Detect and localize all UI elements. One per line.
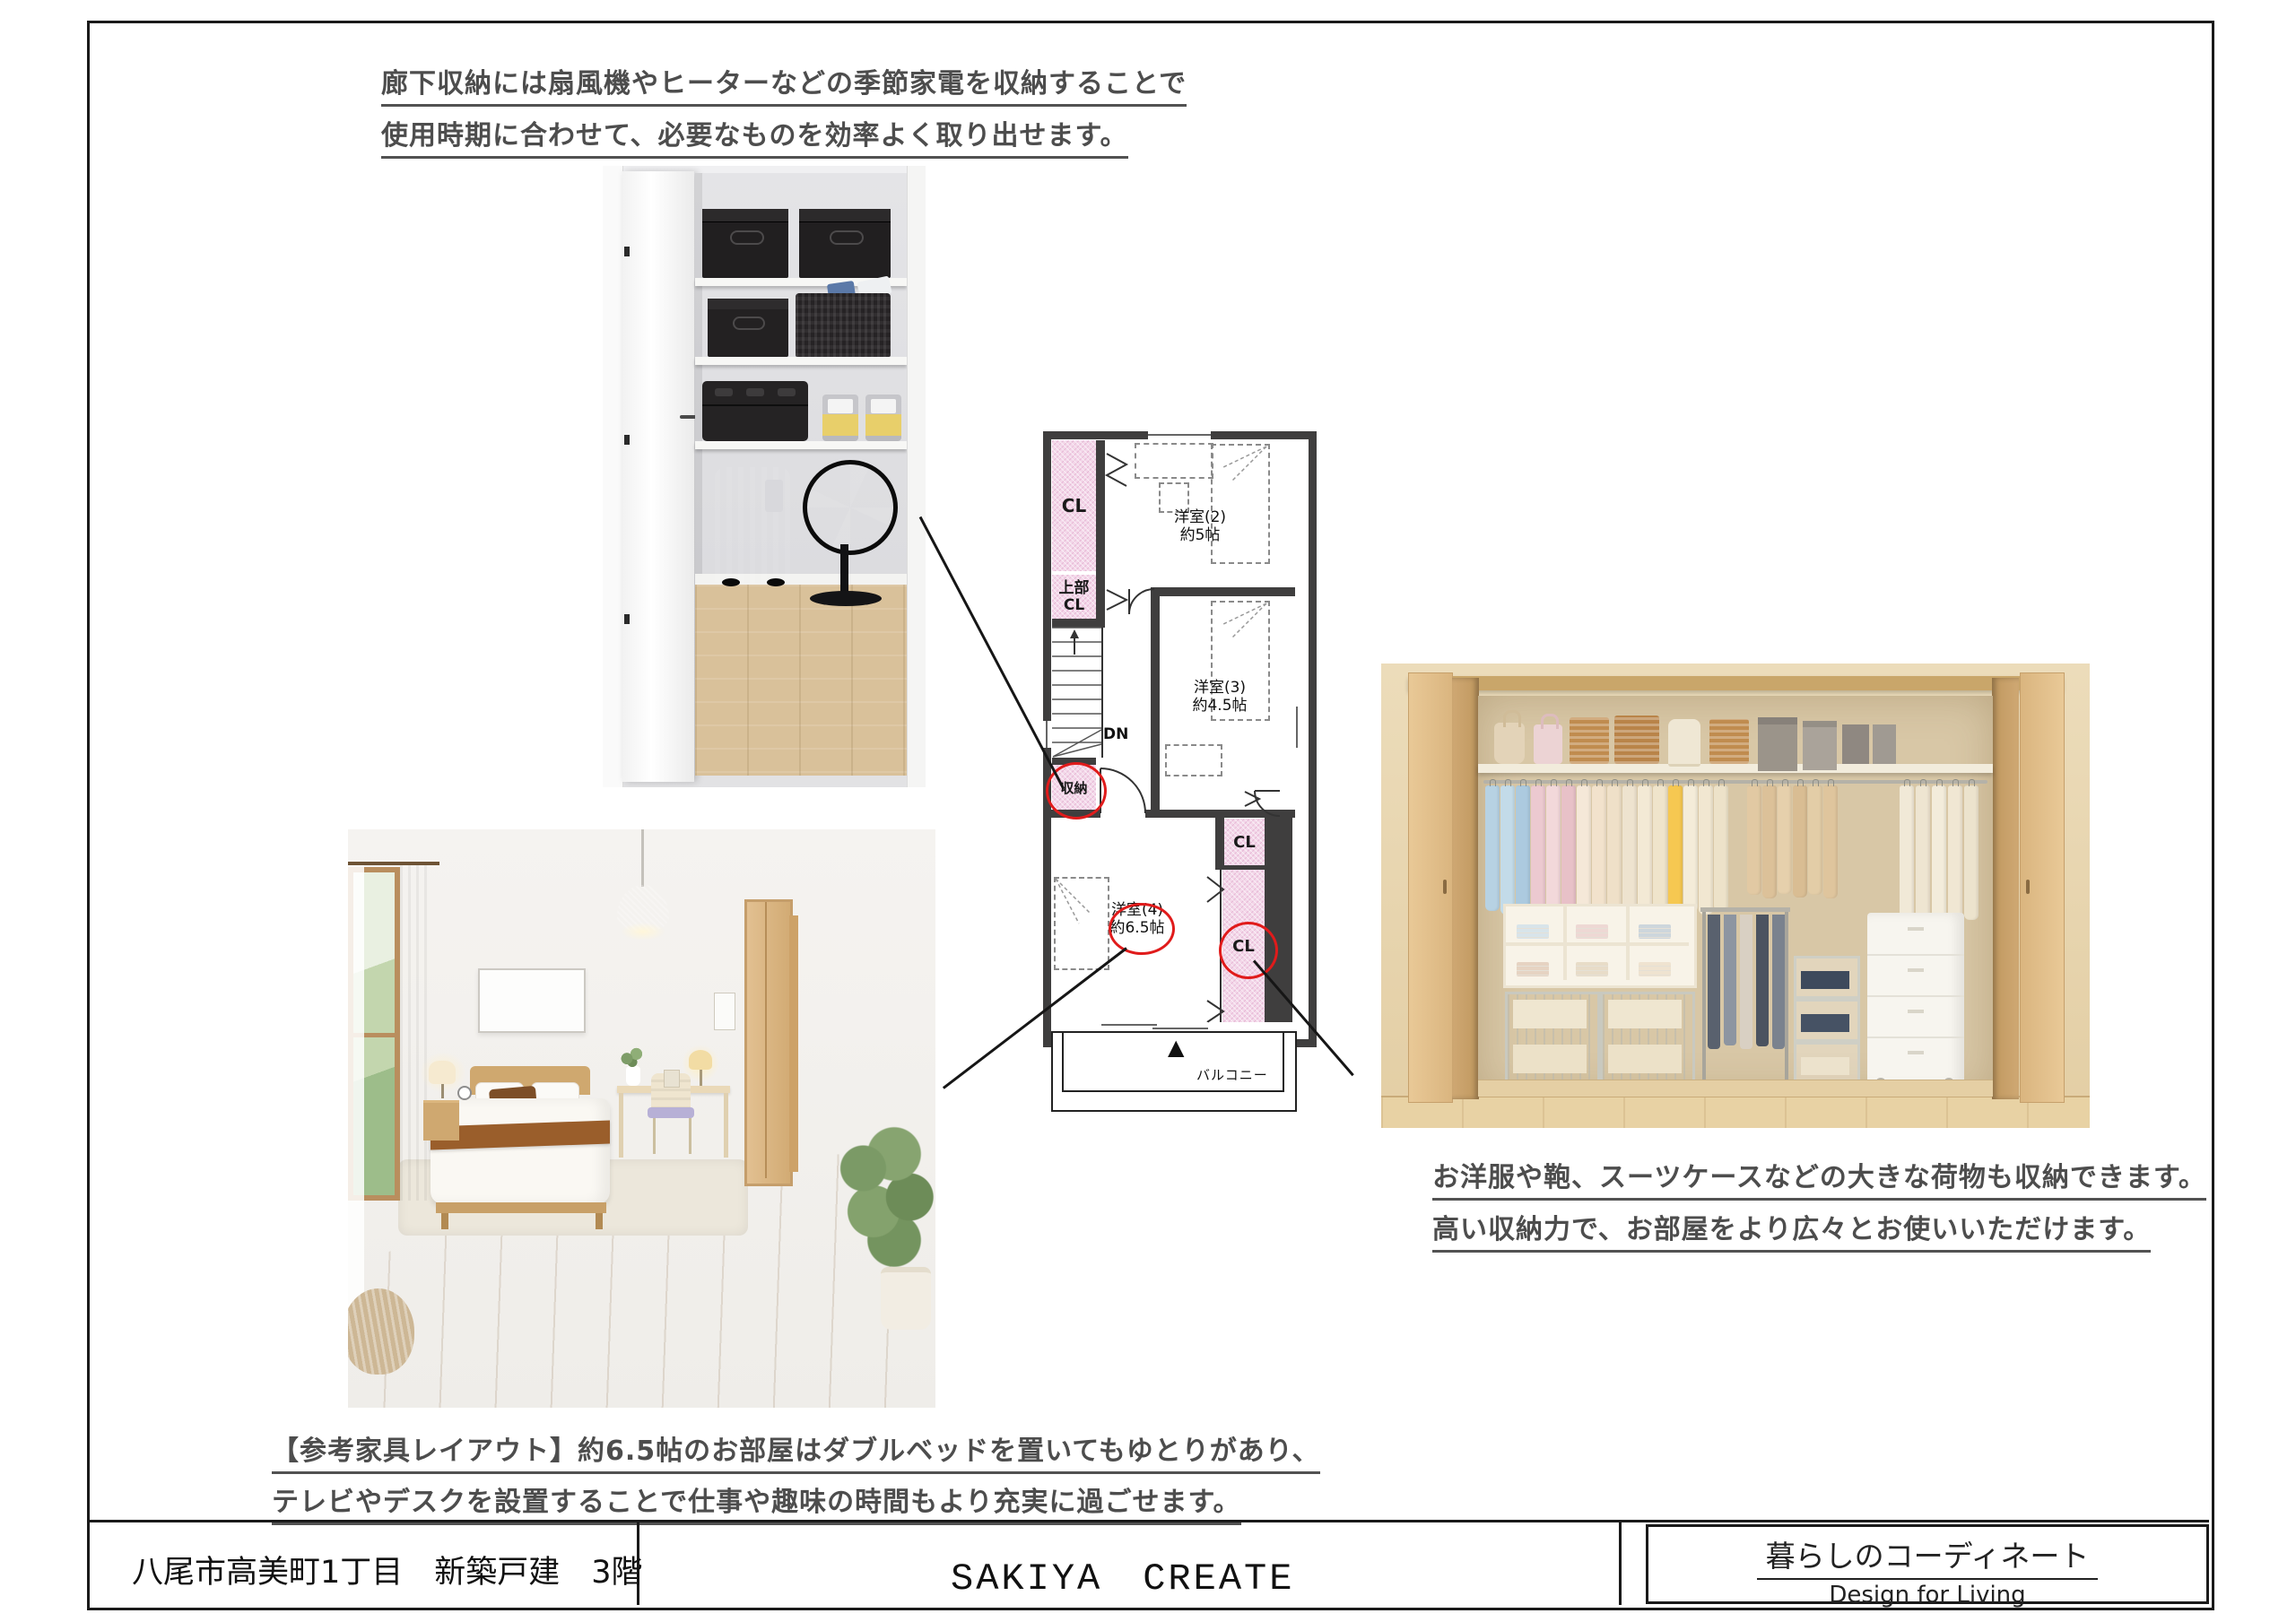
small-frame — [714, 993, 735, 1030]
desk-leg — [619, 1093, 623, 1158]
case-slot — [715, 388, 733, 396]
hanging-shirt — [1592, 785, 1606, 914]
hanging-shirt — [1747, 785, 1761, 895]
folded-clothes — [1801, 1057, 1849, 1075]
closet-interior — [1478, 696, 1993, 1096]
door-jamb — [907, 166, 926, 787]
footer-divider-top — [87, 1520, 2209, 1522]
heater-wheel — [722, 578, 740, 586]
drawer-line — [1867, 1037, 1964, 1038]
cubby-divider — [1563, 906, 1567, 980]
footer-company-name: SAKIYA CREATE — [951, 1546, 1294, 1600]
caption-hallway-line2: 使用時期に合わせて、必要なものを効率よく取り出せます。 — [381, 113, 1128, 152]
hanging-shirt — [1622, 785, 1637, 915]
plant-pot — [881, 1267, 931, 1330]
wood-floor — [1381, 1096, 2090, 1128]
wire-tier — [1794, 1042, 1860, 1085]
balcony-label: バルコニー — [1196, 1065, 1268, 1084]
balcony: ▲ バルコニー — [1051, 1031, 1297, 1112]
hallway-closet-photo — [603, 166, 926, 787]
hanging-shirt — [1653, 785, 1667, 910]
footer-brand-jp: 暮らしのコーディネート — [1757, 1532, 2099, 1580]
sheer-curtain — [348, 865, 364, 1331]
folded-clothes — [1801, 1014, 1849, 1032]
tote-bag — [1534, 724, 1562, 764]
hanging-shirt — [1577, 785, 1591, 910]
wire-tier — [1794, 999, 1860, 1042]
bed-leg — [596, 1213, 603, 1229]
hanging-shirt — [1683, 785, 1698, 912]
closet-door — [622, 171, 694, 782]
door-handle — [1443, 880, 1447, 894]
gray-box — [1758, 717, 1797, 771]
cubby-shelf — [1503, 904, 1697, 988]
rack-leg — [1785, 912, 1788, 1082]
nightstand — [423, 1100, 459, 1141]
desk-photo-frame — [664, 1070, 680, 1088]
wire-basket — [1505, 992, 1600, 1087]
wire-basket — [1600, 992, 1695, 1087]
footer-divider-2 — [1619, 1520, 1622, 1605]
caption-bedroom-line1: 【参考家具レイアウト】約6.5帖のお部屋はダブルベッドを置いてもゆとりがあり、 — [272, 1428, 1320, 1468]
dn-label: DN — [1103, 726, 1128, 744]
bedroom-photo — [348, 829, 935, 1408]
folded-clothes — [1639, 962, 1671, 976]
hanging-shirt — [1762, 785, 1777, 898]
storage-box — [799, 209, 891, 278]
box-lid — [799, 209, 891, 222]
oil-heater — [715, 467, 790, 584]
desk-lamp — [689, 1050, 712, 1070]
gray-box — [1873, 724, 1896, 764]
hanging-rod — [1483, 780, 1987, 784]
hanging-shirt — [1823, 785, 1838, 898]
closet-door-left — [1408, 672, 1453, 1103]
hanging-shirt — [1561, 785, 1576, 915]
gray-box — [1842, 724, 1869, 764]
hanging-shirt — [1516, 785, 1530, 909]
pants-rack — [1700, 907, 1790, 1087]
drawer-line — [1867, 995, 1964, 997]
hanging-shirt — [1638, 785, 1652, 912]
rack-leg — [1702, 912, 1706, 1082]
caption-hallway-line1: 廊下収納には扇風機やヒーターなどの季節家電を収納することで — [381, 61, 1187, 100]
case-line — [702, 404, 808, 406]
drawer-handle — [1908, 1010, 1924, 1013]
folded-clothes — [1517, 962, 1549, 976]
storage-box — [702, 209, 788, 278]
lintel — [1408, 676, 2063, 690]
bag-handle — [1503, 710, 1521, 727]
folded-linen — [1513, 1000, 1587, 1028]
bed-frame — [436, 1202, 606, 1213]
box-handle — [730, 230, 764, 245]
shelf-board — [695, 441, 907, 449]
door-handle — [2026, 880, 2030, 894]
hanging-pants — [1772, 915, 1785, 1049]
hanging-pants — [1740, 915, 1752, 1049]
hanging-shirt — [1668, 785, 1683, 915]
box-handle — [830, 230, 864, 245]
hanging-coat — [1900, 785, 1914, 920]
potted-plant-foliage — [832, 1125, 935, 1269]
drawer-handle — [1908, 1051, 1924, 1054]
hanging-shirt — [1607, 785, 1622, 911]
closet-interior — [695, 173, 907, 776]
drawer-handle — [1908, 927, 1924, 931]
hanging-shirt — [1793, 785, 1807, 898]
electric-fan — [803, 460, 898, 555]
rattan-basket — [1614, 716, 1659, 764]
rattan-basket — [1709, 719, 1749, 764]
box-lid — [708, 299, 788, 309]
hanging-coat — [1916, 785, 1930, 924]
chair-leg — [689, 1118, 691, 1154]
folded-clothes — [1576, 962, 1608, 976]
hanging-shirt — [1699, 785, 1713, 915]
floor-pouf — [348, 1288, 414, 1375]
wire-basket-tower — [1794, 956, 1860, 1085]
desk-plant — [619, 1045, 646, 1068]
page: 廊下収納には扇風機やヒーターなどの季節家電を収納することで 使用時期に合わせて、… — [0, 0, 2296, 1622]
wood-floor — [695, 585, 907, 776]
fan-pole — [840, 544, 848, 596]
lamp-stem — [441, 1084, 444, 1098]
drawer-line — [1867, 954, 1964, 956]
box-handle — [733, 317, 765, 330]
hanging-pants — [1756, 915, 1769, 1046]
drawer-handle — [1908, 968, 1924, 972]
folded-linen — [1608, 1045, 1682, 1073]
chair-leg — [653, 1118, 656, 1154]
woven-basket — [796, 293, 891, 357]
door-edge — [789, 915, 798, 1172]
folded-clothes — [1801, 971, 1849, 989]
gray-box — [1803, 721, 1837, 770]
hanging-shirt — [1778, 785, 1792, 894]
door-hinge — [624, 435, 630, 445]
north-triangle: ▲ — [1168, 1035, 1184, 1060]
door-hinge — [624, 247, 630, 256]
folded-linen — [1513, 1045, 1587, 1073]
room-door — [744, 899, 793, 1186]
jar-label — [828, 399, 853, 413]
folded-clothes — [1639, 924, 1671, 939]
storage-box — [708, 299, 788, 357]
folded-clothes — [1517, 924, 1549, 939]
cubby-divider — [1626, 906, 1630, 980]
curtain — [400, 865, 430, 1201]
footer-brand-box: 暮らしのコーディネート Design for Living — [1646, 1524, 2209, 1604]
footer-address: 八尾市高美町1丁目 新築戸建 3階 — [132, 1547, 643, 1592]
closet-door-right-fold — [1992, 678, 2019, 1099]
hanging-coat — [1948, 785, 1962, 923]
shelf-board — [1478, 764, 1993, 773]
desk-leg — [724, 1093, 728, 1158]
heater-wheel — [767, 578, 785, 586]
caption-wardrobe-line2: 高い収納力で、お部屋をより広々とお使いいただけます。 — [1432, 1207, 2151, 1246]
handbag — [1494, 723, 1525, 764]
door-jamb — [603, 166, 623, 787]
room-label-yoshitsu3: 洋室(3)約4.5帖 — [1175, 680, 1265, 715]
case-slot — [746, 388, 764, 396]
chair-seat — [648, 1107, 694, 1118]
hanging-shirt — [1485, 785, 1500, 911]
closet-door-left-fold — [1452, 678, 1479, 1099]
room-label-yoshitsu2: 洋室(2)約5帖 — [1155, 509, 1245, 544]
hanging-coat — [1964, 785, 1979, 920]
storage-jar — [865, 395, 901, 441]
closet-door-right — [2020, 672, 2065, 1103]
drawer-unit — [1867, 913, 1964, 1085]
rack-bar — [1700, 907, 1790, 912]
heater-panel — [765, 480, 783, 512]
wire-tier — [1794, 956, 1860, 999]
hanging-pants — [1708, 915, 1720, 1049]
hanging-pants — [1724, 915, 1736, 1045]
hanging-coat — [1932, 785, 1946, 920]
bed-leg — [441, 1213, 448, 1229]
hanging-shirt — [1808, 785, 1822, 895]
fan-base — [810, 591, 882, 606]
folded-clothes — [1576, 924, 1608, 939]
cubby-divider — [1506, 942, 1689, 946]
storage-case — [702, 381, 808, 441]
box-lid — [702, 209, 788, 222]
shelf-board — [695, 357, 907, 365]
canister — [1668, 719, 1700, 767]
caption-bedroom-line2: テレビやデスクを設置することで仕事や趣味の時間もより充実に過ごせます。 — [272, 1479, 1241, 1519]
wall-art — [478, 968, 586, 1033]
jar-label — [871, 399, 896, 413]
wardrobe-photo — [1381, 664, 2090, 1128]
red-circle-room4 — [1109, 903, 1175, 955]
desk-lamp-stem — [700, 1070, 702, 1086]
footer-brand-en: Design for Living — [1648, 1582, 2206, 1609]
lamp-glow — [621, 923, 665, 941]
rattan-basket — [1570, 717, 1609, 764]
pendant-cord — [641, 829, 644, 887]
case-slot — [778, 388, 796, 396]
hanging-shirt — [1531, 785, 1545, 913]
door-line — [765, 902, 767, 1178]
alarm-clock — [457, 1086, 472, 1100]
door-hinge — [624, 614, 630, 624]
caption-wardrobe-line1: お洋服や鞄、スーツケースなどの大きな荷物も収納できます。 — [1432, 1155, 2206, 1194]
red-circle-cl — [1219, 922, 1278, 979]
hanging-shirt — [1500, 785, 1515, 915]
table-lamp — [429, 1061, 456, 1084]
floor-plan: CL 上部CL 収納 CL CL — [1040, 429, 1302, 1117]
interior-floor — [1478, 1080, 1993, 1097]
hanging-shirt — [1546, 785, 1561, 911]
folded-linen — [1608, 1000, 1682, 1028]
hanging-shirt — [1714, 785, 1728, 911]
desk-vase — [626, 1066, 640, 1086]
storage-jar — [822, 395, 858, 441]
bag-handle — [1541, 714, 1559, 729]
